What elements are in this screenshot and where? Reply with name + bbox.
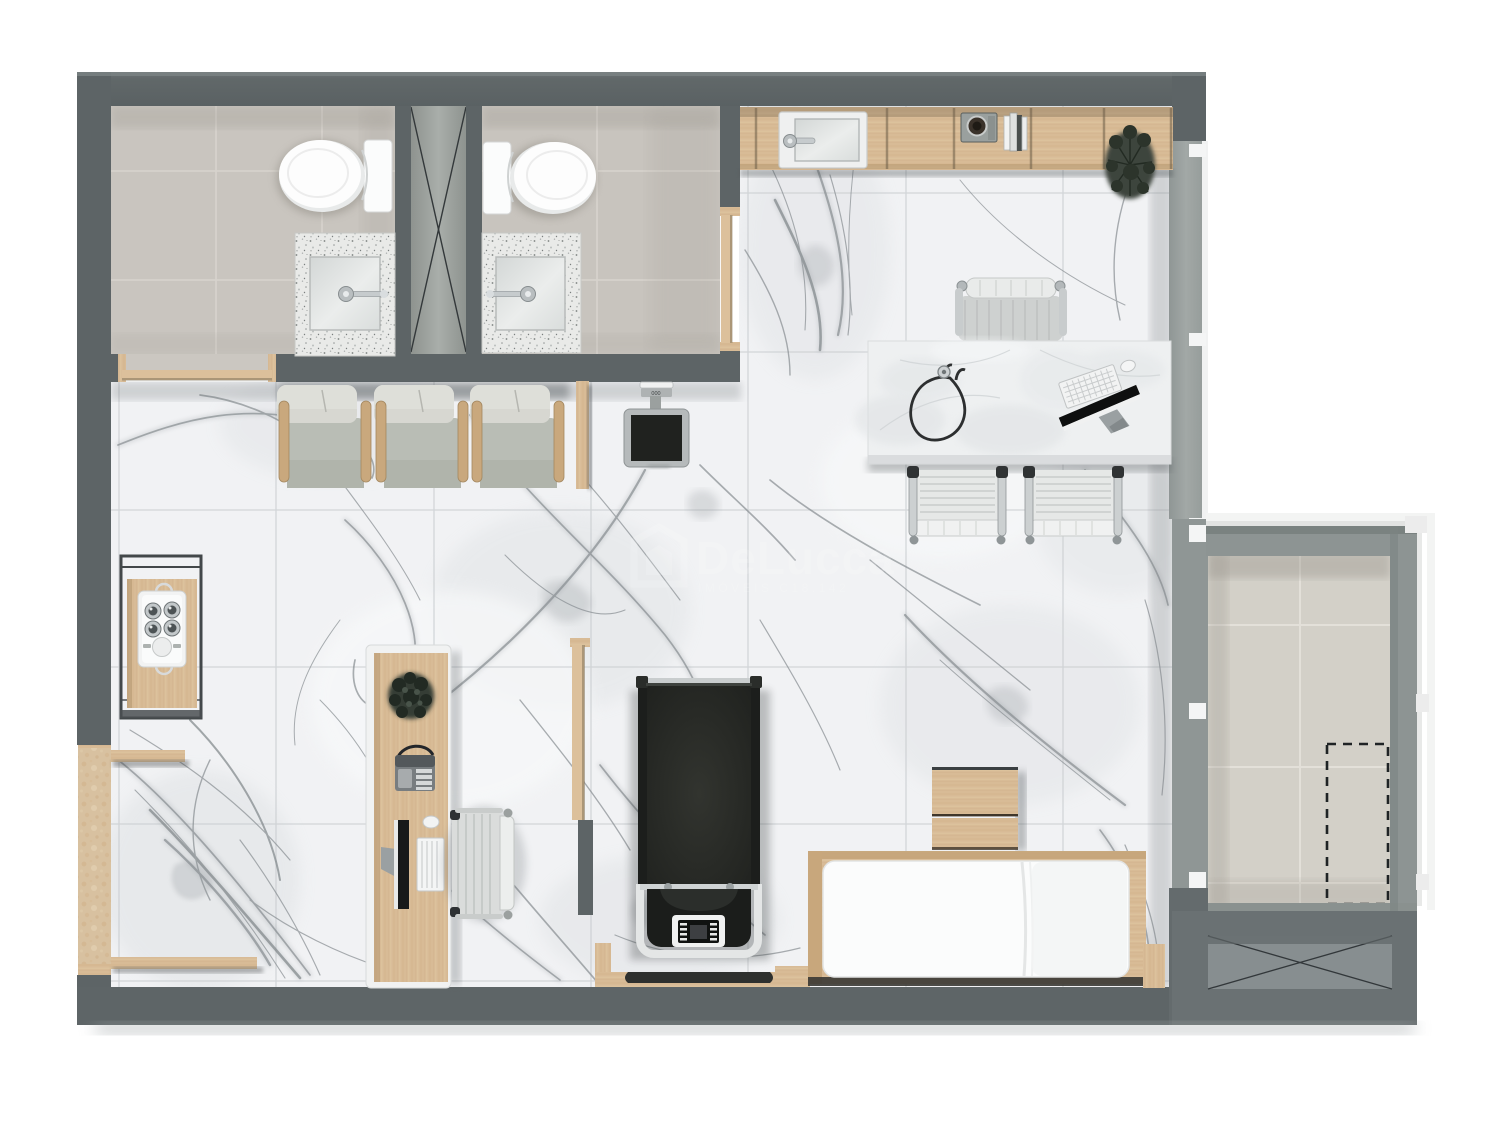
svg-text:DeLucca: DeLucca (696, 532, 895, 584)
svg-text:IMÓVEIS C18.142: IMÓVEIS C18.142 (698, 580, 849, 595)
